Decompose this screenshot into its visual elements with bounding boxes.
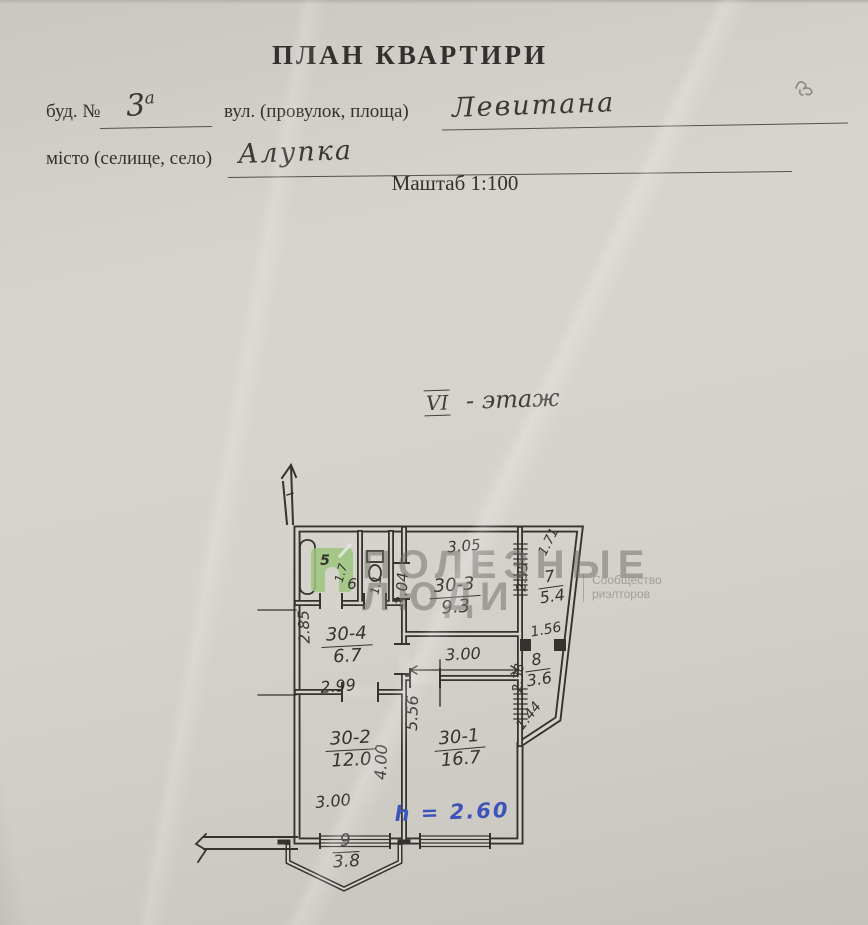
dimension-line-hall [410,666,518,674]
loggia-divider-stubs [520,639,566,651]
room-7-label: 7 5.4 [536,567,566,607]
room-30-3-area: 9.3 [430,596,482,619]
building-letter: а [144,88,156,109]
ceiling-height-note: h = 2.60 [394,798,510,826]
room-30-3-label: 30-3 9.3 [428,575,482,619]
dim-hall-width: 3.00 [445,644,482,665]
building-number-handwritten: 3а [125,87,157,124]
balcony-9-label: 9 3.8 [331,832,360,872]
dim-corridor-width: 2.99 [319,675,356,697]
direction-arrow [282,465,296,524]
dim-loggia7-side: 2.95 [514,562,531,592]
room-30-2-label: 30-2 12.0 [325,728,378,771]
dim-loggia8-side: 2.38 [510,663,527,693]
city-value-handwritten: Алупка [237,135,353,170]
document-title: ПЛАН КВАРТИРИ [0,40,820,71]
dim-room2-width: 3.00 [314,790,351,812]
floor-word: - этаж [466,384,560,415]
room1-window [420,834,490,848]
balcony-9-area: 3.8 [333,852,361,872]
room-30-4-number: 30-4 [321,624,373,648]
room-30-1-label: 30-1 16.7 [433,726,487,771]
scanned-floor-plan-document: { "header": { "title": "ПЛАН КВАРТИРИ", … [0,0,868,925]
dim-kitchen-width: 3.05 [447,536,482,557]
floor-numeral: VI [424,389,451,416]
street-label: вул. (провулок, площа) [224,101,409,123]
dimension-ticks-left [258,610,296,695]
floor-note: VI - этаж [424,384,560,417]
dim-room2-depth: 4.00 [371,744,391,780]
street-underline [442,122,848,130]
dim-room1-depth: 5.56 [402,695,422,731]
building-label: буд. № [46,101,101,123]
floor-plan-drawing [192,448,652,918]
balcony-9-number: 9 [331,832,359,853]
handwritten-scribble [790,72,818,98]
room-7-area: 5.4 [538,586,566,607]
room-30-1-area: 16.7 [435,747,487,771]
room-30-2-area: 12.0 [326,749,378,772]
scale-text: Маштаб 1:100 [0,171,868,196]
room-8-label: 8 3.6 [523,650,553,690]
adjacent-wall [196,834,297,862]
room-6-number: 6 [347,575,357,593]
room-8-area: 3.6 [525,669,553,690]
city-label: місто (селище, село) [46,148,212,170]
street-value-handwritten: Левитана [452,87,616,124]
room-5-number: 5 [320,553,330,569]
dim-corridor-depth: 2.85 [294,610,313,644]
building-underline [100,126,212,129]
room-30-4-label: 30-4 6.7 [321,624,374,667]
dim-kitchen-depth: 3.04 [392,572,412,606]
room-30-4-area: 6.7 [322,645,374,668]
